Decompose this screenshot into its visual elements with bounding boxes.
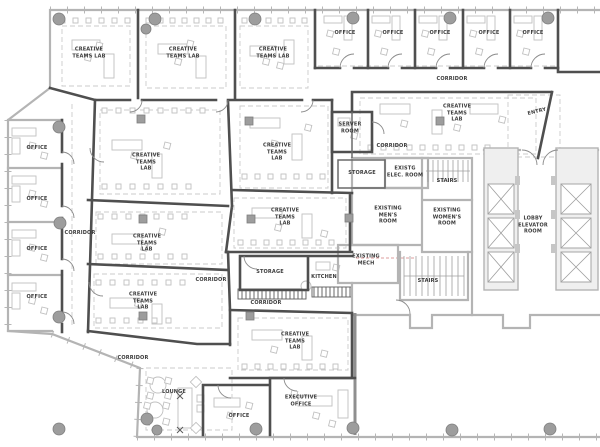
room-label-office: OFFICE bbox=[27, 196, 48, 203]
room-label-creative-teams-lab: CREATIVE TEAMS LAB bbox=[281, 331, 309, 351]
room-label-office: OFFICE bbox=[430, 30, 451, 37]
stairs-icon-lower bbox=[404, 256, 464, 296]
room-label-storage: STORAGE bbox=[256, 269, 284, 276]
room-label-server-room: SERVER ROOM bbox=[335, 122, 365, 135]
room-label-lobby-elevator-room: LOBBY ELEVATOR ROOM bbox=[517, 215, 549, 235]
room-label-creative-teams-lab: CREATIVE TEAMS LAB bbox=[443, 103, 471, 123]
room-label-office: OFFICE bbox=[383, 30, 404, 37]
room-label-creative-teams-lab: CREATIVE TEAMS LAB bbox=[133, 233, 161, 253]
room-label-existing-elec-room: EXISTG ELEC. ROOM bbox=[386, 166, 424, 179]
room-label-corridor: CORRIDOR bbox=[251, 300, 282, 307]
room-label-existing-womens-room: EXISTING WOMEN'S ROOM bbox=[429, 207, 465, 227]
room-label-office: OFFICE bbox=[27, 246, 48, 253]
floor-plan-drawing bbox=[0, 0, 600, 447]
floor-plan: CREATIVE TEAMS LAB CREATIVE TEAMS LAB CR… bbox=[0, 0, 600, 447]
room-label-office: OFFICE bbox=[229, 413, 250, 420]
room-label-corridor: CORRIDOR bbox=[65, 230, 96, 237]
room-label-corridor: CORRIDOR bbox=[377, 143, 408, 150]
room-label-storage: STORAGE bbox=[348, 170, 376, 177]
room-label-office: OFFICE bbox=[479, 30, 500, 37]
room-label-office: OFFICE bbox=[335, 30, 356, 37]
room-label-office: OFFICE bbox=[523, 30, 544, 37]
room-label-office: OFFICE bbox=[27, 294, 48, 301]
room-label-kitchen: KITCHEN bbox=[311, 274, 337, 281]
room-label-executive-office: EXECUTIVE OFFICE bbox=[284, 395, 318, 408]
room-label-creative-teams-lab: CREATIVE TEAMS LAB bbox=[249, 47, 297, 60]
room-label-creative-teams-lab: CREATIVE TEAMS LAB bbox=[132, 152, 160, 172]
room-label-creative-teams-lab: CREATIVE TEAMS LAB bbox=[65, 47, 113, 60]
room-label-stairs: STAIRS bbox=[437, 178, 458, 185]
room-label-existing-mech: EXISTING MECH bbox=[351, 254, 381, 267]
room-label-creative-teams-lab: CREATIVE TEAMS LAB bbox=[159, 47, 207, 60]
room-label-office: OFFICE bbox=[27, 145, 48, 152]
room-label-creative-teams-lab: CREATIVE TEAMS LAB bbox=[271, 207, 299, 227]
room-label-corridor: CORRIDOR bbox=[196, 277, 227, 284]
room-label-stairs: STAIRS bbox=[418, 278, 439, 285]
room-label-creative-teams-lab: CREATIVE TEAMS LAB bbox=[263, 142, 291, 162]
room-label-existing-mens-room: EXISTING MEN'S ROOM bbox=[371, 205, 405, 225]
room-label-lounge: LOUNGE bbox=[162, 389, 186, 396]
room-label-corridor: CORRIDOR bbox=[118, 355, 149, 362]
room-label-creative-teams-lab: CREATIVE TEAMS LAB bbox=[129, 291, 157, 311]
room-label-corridor: CORRIDOR bbox=[437, 76, 468, 83]
